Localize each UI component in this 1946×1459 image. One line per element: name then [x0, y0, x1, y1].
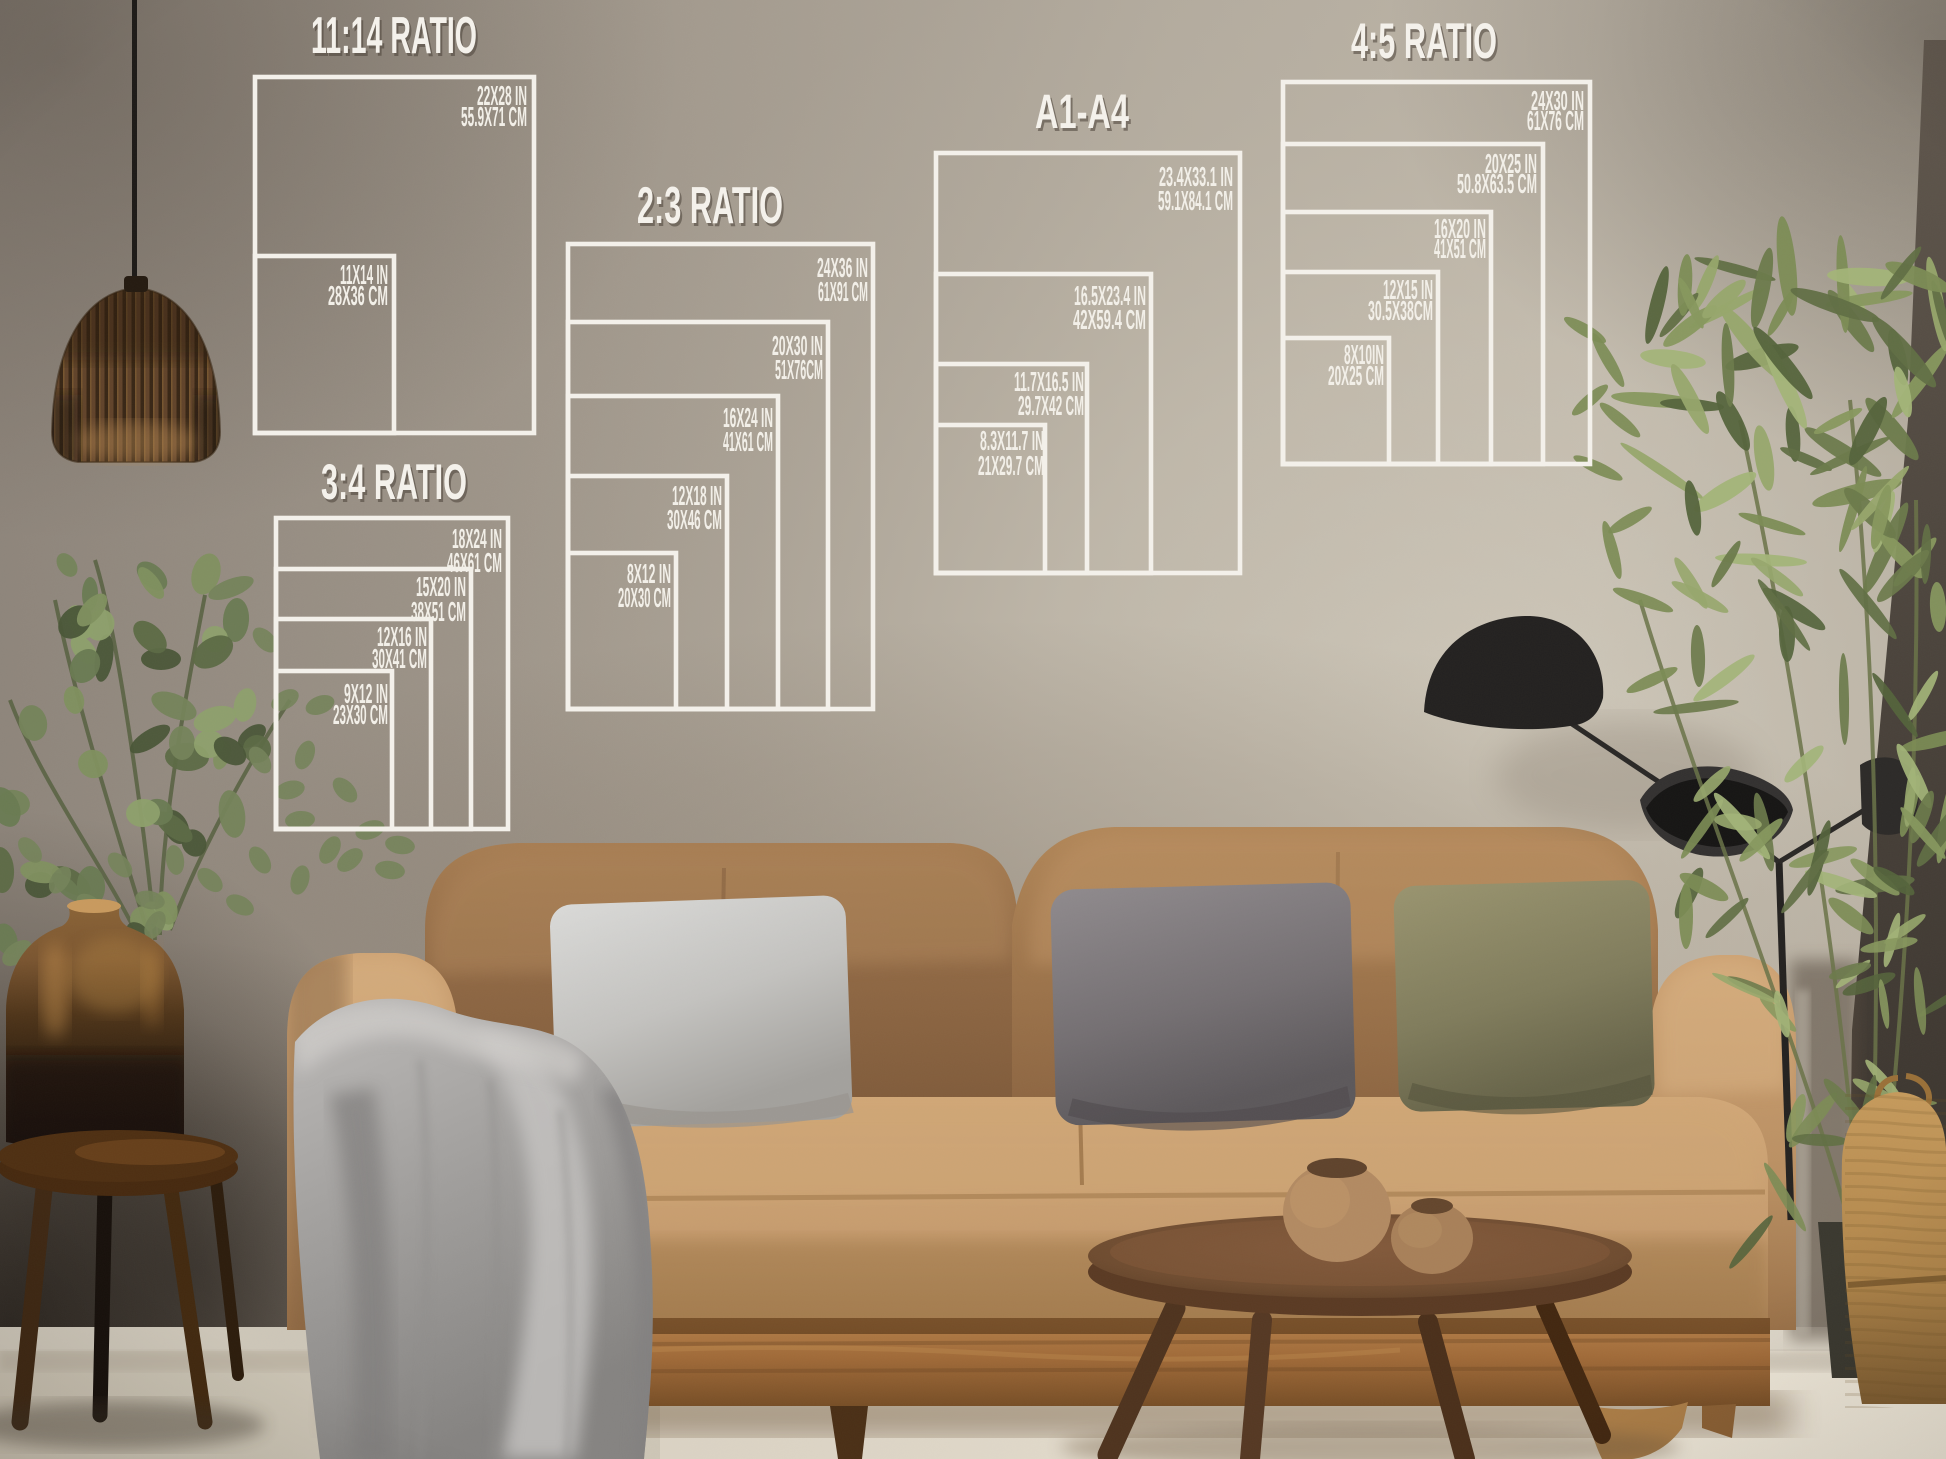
- svg-text:23X30 CM: 23X30 CM: [333, 699, 388, 730]
- svg-text:55.9X71 CM: 55.9X71 CM: [461, 101, 527, 132]
- svg-text:3:4 RATIO: 3:4 RATIO: [321, 454, 467, 510]
- svg-text:20X25 CM: 20X25 CM: [1328, 360, 1384, 391]
- svg-text:30X41 CM: 30X41 CM: [372, 643, 427, 674]
- svg-text:28X36 CM: 28X36 CM: [328, 280, 388, 311]
- svg-text:61X76 CM: 61X76 CM: [1527, 105, 1584, 136]
- svg-text:11:14 RATIO: 11:14 RATIO: [311, 7, 477, 65]
- svg-text:20X30 CM: 20X30 CM: [618, 582, 671, 613]
- svg-text:4:5 RATIO: 4:5 RATIO: [1351, 13, 1497, 69]
- svg-text:29.7X42 CM: 29.7X42 CM: [1018, 390, 1084, 421]
- svg-text:41X51 CM: 41X51 CM: [1434, 233, 1486, 264]
- svg-text:42X59.4 CM: 42X59.4 CM: [1073, 304, 1146, 335]
- svg-text:61X91 CM: 61X91 CM: [818, 276, 868, 307]
- svg-text:30.5X38CM: 30.5X38CM: [1368, 295, 1433, 326]
- svg-text:30X46 CM: 30X46 CM: [667, 504, 722, 535]
- svg-text:41X61 CM: 41X61 CM: [723, 426, 773, 457]
- svg-text:A1-A4: A1-A4: [1035, 86, 1129, 139]
- svg-text:59.1X84.1 CM: 59.1X84.1 CM: [1158, 185, 1233, 216]
- svg-text:50.8X63.5 CM: 50.8X63.5 CM: [1457, 168, 1537, 199]
- svg-text:2:3 RATIO: 2:3 RATIO: [637, 177, 783, 235]
- svg-text:21X29.7 CM: 21X29.7 CM: [978, 450, 1044, 481]
- svg-text:51X76CM: 51X76CM: [775, 354, 823, 385]
